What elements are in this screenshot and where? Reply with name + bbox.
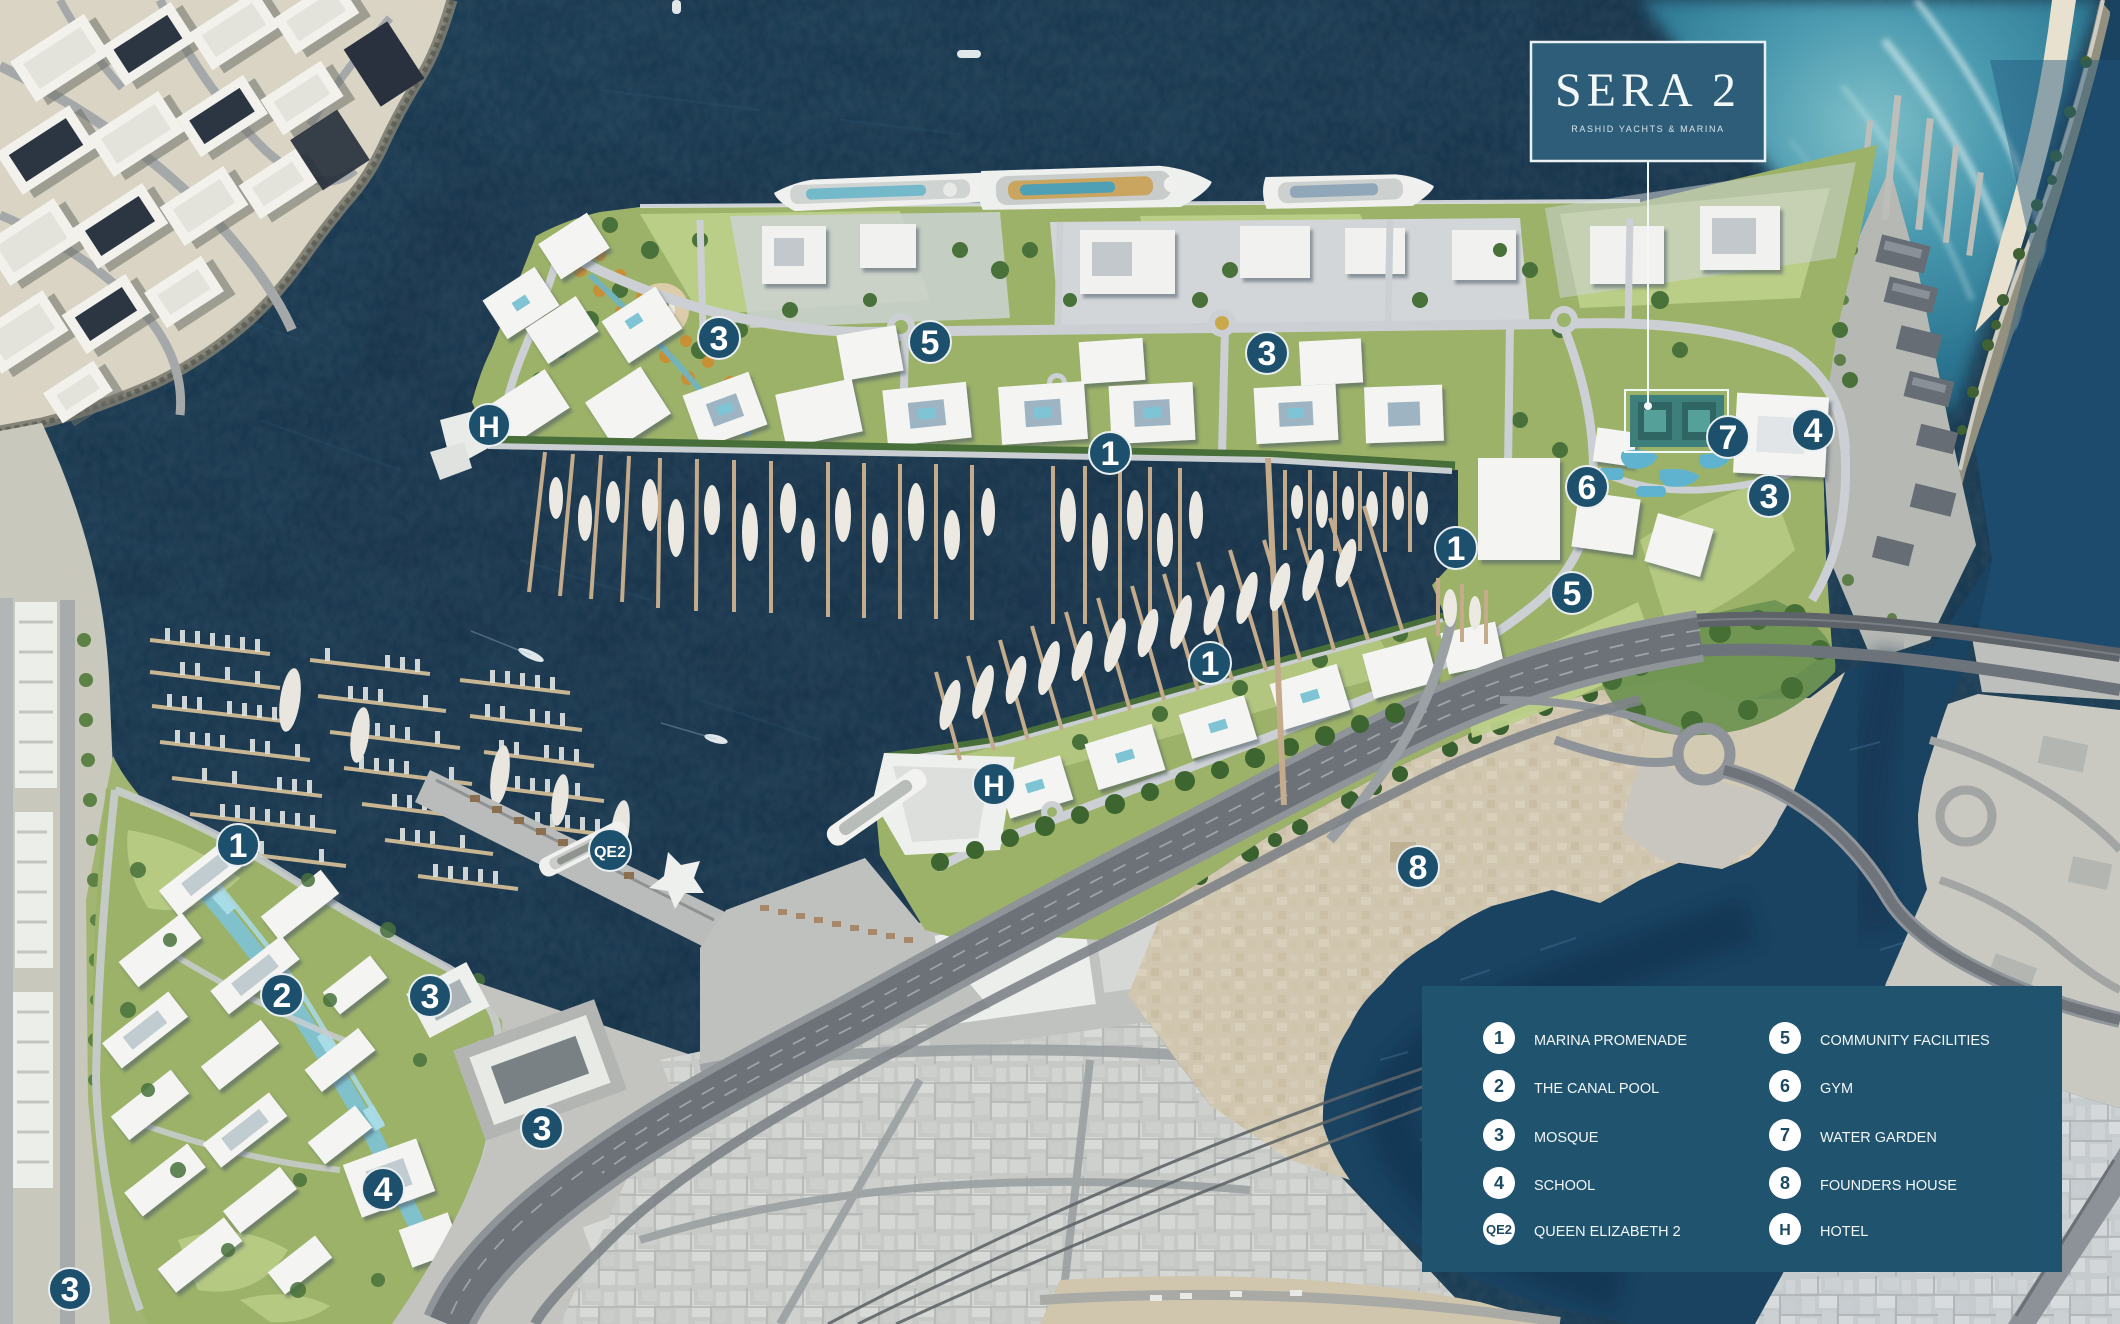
svg-text:MOSQUE: MOSQUE [1534, 1130, 1599, 1146]
svg-text:SERA 2: SERA 2 [1555, 64, 1741, 117]
svg-text:3: 3 [1258, 335, 1277, 373]
svg-text:6: 6 [1578, 469, 1597, 507]
svg-text:8: 8 [1409, 849, 1428, 887]
svg-text:4: 4 [1494, 1173, 1504, 1193]
svg-text:3: 3 [61, 1271, 80, 1309]
svg-text:COMMUNITY FACILITIES: COMMUNITY FACILITIES [1820, 1033, 1990, 1049]
svg-text:1: 1 [1101, 435, 1120, 473]
svg-text:RASHID YACHTS & MARINA: RASHID YACHTS & MARINA [1571, 124, 1724, 134]
svg-text:1: 1 [1201, 645, 1220, 683]
svg-text:1: 1 [1447, 530, 1466, 568]
svg-text:1: 1 [229, 827, 248, 865]
svg-text:THE CANAL POOL: THE CANAL POOL [1534, 1081, 1659, 1097]
svg-text:4: 4 [1804, 412, 1823, 450]
svg-text:QE2: QE2 [1486, 1222, 1512, 1237]
svg-text:3: 3 [1494, 1125, 1504, 1145]
svg-text:5: 5 [1780, 1028, 1790, 1048]
svg-text:6: 6 [1780, 1076, 1790, 1096]
svg-text:3: 3 [421, 978, 440, 1016]
svg-text:SCHOOL: SCHOOL [1534, 1178, 1595, 1194]
svg-text:7: 7 [1719, 419, 1738, 457]
svg-text:GYM: GYM [1820, 1081, 1853, 1097]
svg-text:QUEEN ELIZABETH 2: QUEEN ELIZABETH 2 [1534, 1224, 1681, 1240]
svg-text:4: 4 [374, 1171, 393, 1209]
svg-text:8: 8 [1780, 1173, 1790, 1193]
svg-text:3: 3 [1760, 478, 1779, 516]
svg-text:5: 5 [1563, 575, 1582, 613]
svg-text:WATER GARDEN: WATER GARDEN [1820, 1130, 1937, 1146]
svg-text:QE2: QE2 [594, 844, 626, 861]
svg-text:2: 2 [273, 977, 292, 1015]
svg-text:HOTEL: HOTEL [1820, 1224, 1868, 1240]
svg-text:3: 3 [710, 320, 729, 358]
svg-text:5: 5 [921, 324, 940, 362]
svg-text:2: 2 [1494, 1076, 1504, 1096]
svg-text:3: 3 [533, 1110, 552, 1148]
svg-text:H: H [983, 770, 1005, 803]
svg-text:H: H [478, 411, 500, 444]
svg-text:FOUNDERS HOUSE: FOUNDERS HOUSE [1820, 1178, 1957, 1194]
svg-text:7: 7 [1780, 1125, 1790, 1145]
svg-text:H: H [1779, 1222, 1791, 1239]
svg-text:1: 1 [1494, 1028, 1504, 1048]
svg-text:MARINA PROMENADE: MARINA PROMENADE [1534, 1033, 1687, 1049]
